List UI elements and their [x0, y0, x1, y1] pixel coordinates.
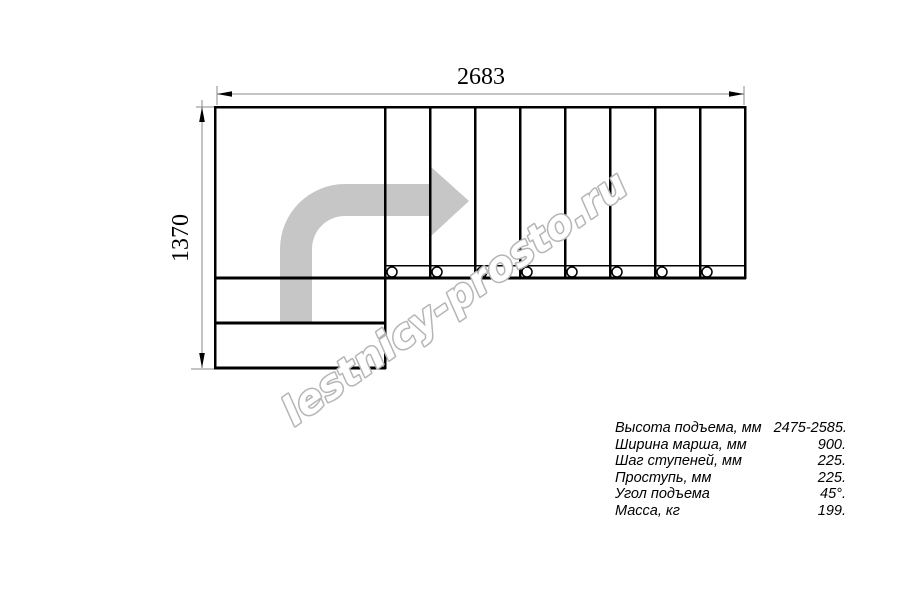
arrowhead-up-icon	[199, 107, 205, 122]
dimension-lines	[191, 86, 744, 369]
spec-label: Проступь, мм	[615, 470, 711, 487]
tread-fastener-holes	[387, 267, 712, 277]
spec-value: 900.	[818, 437, 846, 454]
spec-value: 45°.	[820, 486, 846, 503]
spec-table: Высота подъема, мм 2475-2585. Ширина мар…	[615, 420, 846, 519]
spec-label: Масса, кг	[615, 503, 680, 520]
fastener-hole-icon	[432, 267, 442, 277]
fastener-hole-icon	[612, 267, 622, 277]
spec-value: 2475-2585.	[774, 420, 847, 437]
spec-label: Ширина марша, мм	[615, 437, 747, 454]
fastener-hole-icon	[702, 267, 712, 277]
arrowhead-down-icon	[199, 353, 205, 368]
arrowhead-right-icon	[729, 91, 744, 97]
dimension-arrowheads	[199, 91, 744, 368]
spec-row-step-pitch: Шаг ступеней, мм 225.	[615, 453, 846, 470]
spec-label: Угол подъема	[615, 486, 710, 503]
spec-row-tread: Проступь, мм 225.	[615, 470, 846, 487]
arrowhead-left-icon	[217, 91, 232, 97]
fastener-hole-icon	[657, 267, 667, 277]
spec-row-march-width: Ширина марша, мм 900.	[615, 437, 846, 454]
width-dimension-label: 2683	[431, 65, 531, 89]
spec-label: Шаг ступеней, мм	[615, 453, 742, 470]
height-dimension-label: 1370	[169, 188, 195, 288]
fastener-hole-icon	[567, 267, 577, 277]
spec-label: Высота подъема, мм	[615, 420, 762, 437]
spec-value: 225.	[818, 470, 846, 487]
spec-row-angle: Угол подъема 45°.	[615, 486, 846, 503]
spec-row-height: Высота подъема, мм 2475-2585.	[615, 420, 846, 437]
spec-value: 199.	[818, 503, 846, 520]
spec-row-mass: Масса, кг 199.	[615, 503, 846, 520]
staircase-drawing-page: lestnicy-prosto.ru 2683 1370 Высота подъ…	[0, 0, 900, 600]
spec-value: 225.	[818, 453, 846, 470]
fastener-hole-icon	[387, 267, 397, 277]
